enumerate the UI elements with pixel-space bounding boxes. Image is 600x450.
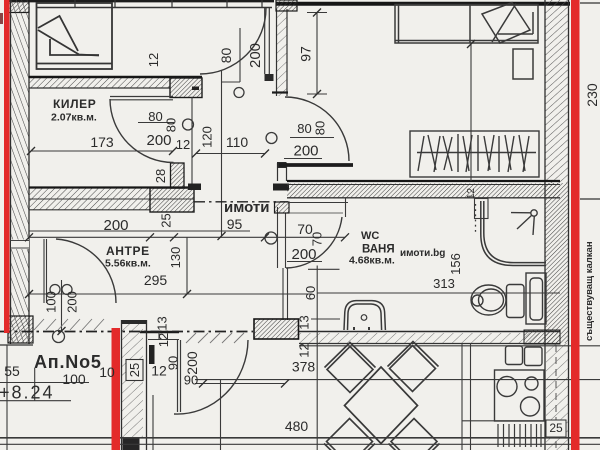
svg-text:70: 70 xyxy=(310,232,325,246)
svg-text:90: 90 xyxy=(166,356,181,370)
svg-text:25: 25 xyxy=(159,213,174,227)
svg-text:200: 200 xyxy=(247,43,264,68)
svg-text:200: 200 xyxy=(293,143,318,160)
svg-text:480: 480 xyxy=(285,418,309,434)
svg-text:130: 130 xyxy=(168,247,183,269)
svg-text:80: 80 xyxy=(313,121,328,135)
svg-text:80: 80 xyxy=(164,118,179,132)
svg-text:55: 55 xyxy=(4,363,20,379)
svg-text:+8.24: +8.24 xyxy=(0,383,55,403)
svg-text:313: 313 xyxy=(433,276,455,291)
svg-text:200: 200 xyxy=(146,132,171,149)
svg-text:80: 80 xyxy=(148,109,162,124)
svg-text:12: 12 xyxy=(466,188,477,200)
svg-text:имоти.bg: имоти.bg xyxy=(400,248,445,259)
svg-text:95: 95 xyxy=(227,216,243,232)
svg-text:съществуващ калкан: съществуващ калкан xyxy=(584,241,595,341)
svg-text:110: 110 xyxy=(226,134,249,150)
svg-text:378: 378 xyxy=(292,359,316,375)
svg-text:12: 12 xyxy=(176,137,190,152)
svg-text:10: 10 xyxy=(99,364,115,380)
svg-text:200: 200 xyxy=(184,351,200,375)
svg-text:100: 100 xyxy=(44,291,59,313)
svg-text:28: 28 xyxy=(153,169,168,183)
svg-text:АНТРЕ: АНТРЕ xyxy=(106,244,150,258)
svg-text:25: 25 xyxy=(549,421,563,435)
svg-text:25: 25 xyxy=(127,363,142,377)
svg-text:80: 80 xyxy=(297,121,311,136)
svg-text:200: 200 xyxy=(291,246,316,263)
svg-text:12: 12 xyxy=(146,53,161,67)
svg-text:5.56кв.м.: 5.56кв.м. xyxy=(105,258,151,270)
svg-text:230: 230 xyxy=(584,83,600,107)
svg-text:Ап.No5: Ап.No5 xyxy=(34,352,102,372)
svg-text:97: 97 xyxy=(298,46,314,62)
svg-text:КИЛЕР: КИЛЕР xyxy=(53,97,96,111)
svg-text:12: 12 xyxy=(297,343,312,357)
svg-text:WC: WC xyxy=(361,230,379,242)
svg-text:200: 200 xyxy=(65,291,80,313)
svg-text:295: 295 xyxy=(144,272,168,288)
svg-text:120: 120 xyxy=(200,126,215,148)
svg-text:имоти: имоти xyxy=(224,199,269,216)
svg-text:100: 100 xyxy=(62,371,86,387)
svg-text:13: 13 xyxy=(297,315,312,329)
svg-text:12: 12 xyxy=(156,333,171,347)
svg-text:200: 200 xyxy=(103,217,128,234)
svg-text:156: 156 xyxy=(448,253,463,275)
svg-text:2.07кв.м.: 2.07кв.м. xyxy=(51,112,97,124)
svg-text:60: 60 xyxy=(303,286,318,300)
svg-text:4.68кв.м.: 4.68кв.м. xyxy=(349,255,395,267)
svg-text:80: 80 xyxy=(218,48,234,64)
svg-text:173: 173 xyxy=(90,134,114,150)
svg-text:13: 13 xyxy=(155,316,170,330)
